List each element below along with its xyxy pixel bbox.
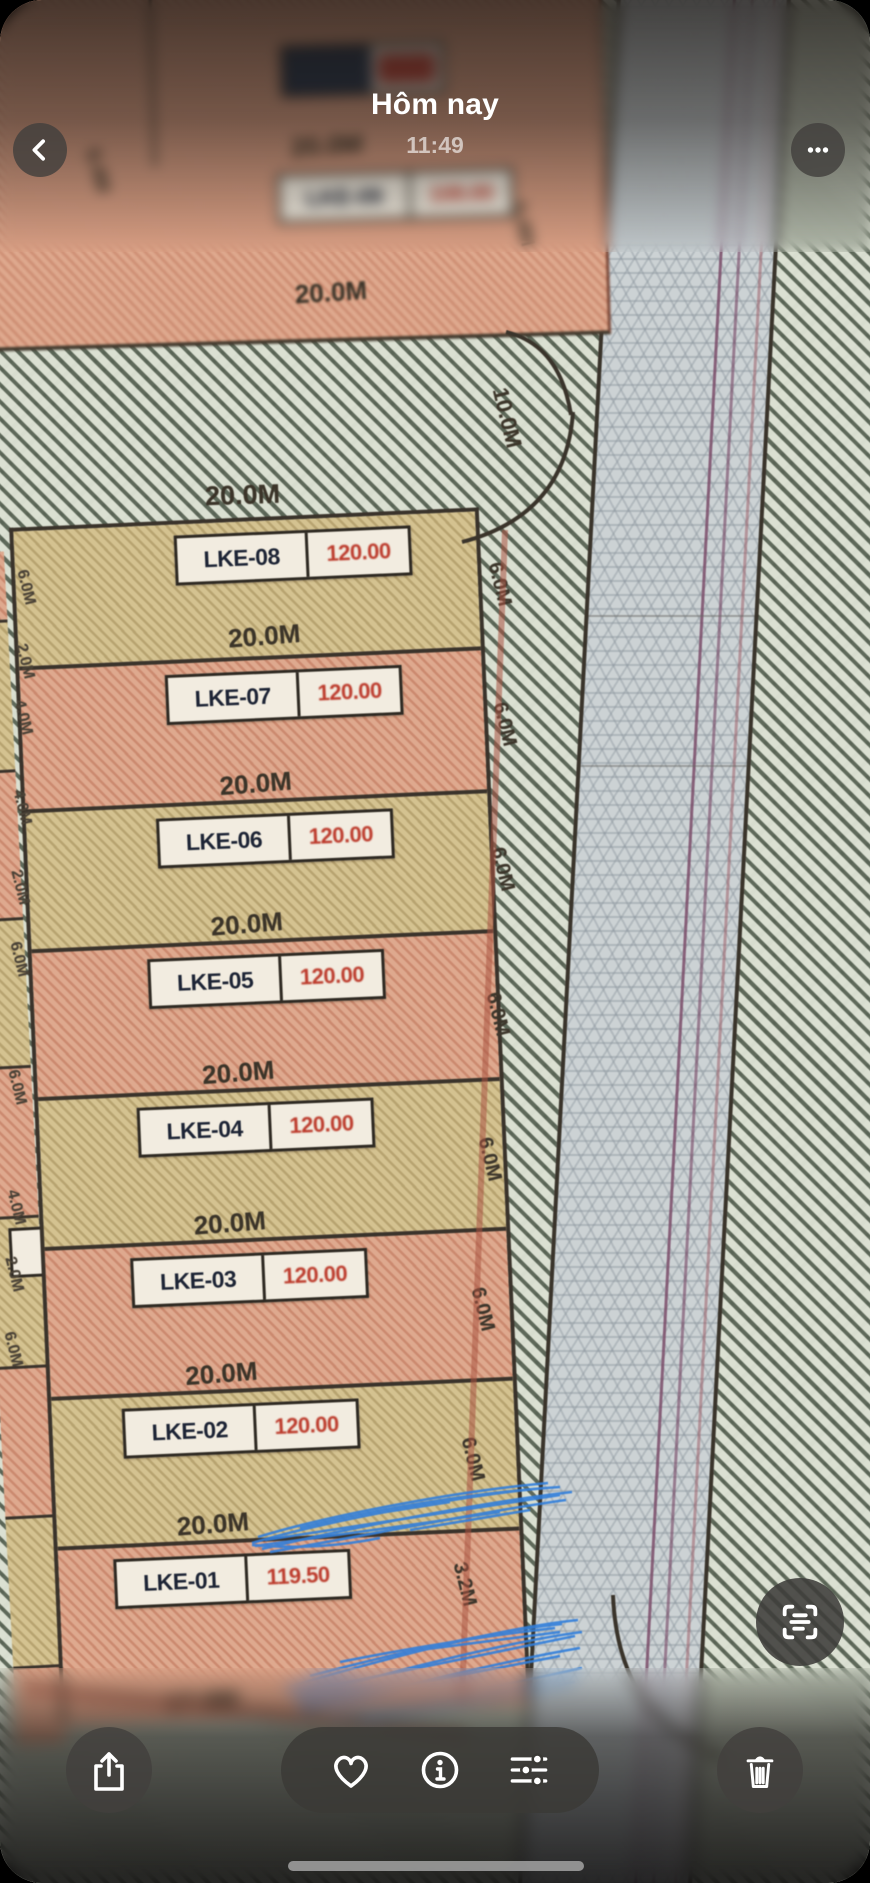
share-button[interactable] <box>66 1727 152 1813</box>
ellipsis-icon <box>800 132 836 168</box>
live-text-button[interactable] <box>756 1578 844 1666</box>
share-icon <box>85 1746 133 1794</box>
detect-text-icon <box>777 1599 823 1645</box>
sliders-icon <box>504 1745 554 1795</box>
timestamp: 11:49 <box>0 132 870 159</box>
info-button[interactable] <box>410 1740 470 1800</box>
delete-button[interactable] <box>717 1727 803 1813</box>
favorite-button[interactable] <box>321 1740 381 1800</box>
photo-actions-toolbar <box>281 1727 599 1813</box>
photos-app-screen: 20.0M LKE-09 108.00 20.0M 6.4M 5.4M 10.0… <box>0 0 870 1883</box>
photo-view[interactable]: 20.0M LKE-09 108.00 20.0M 6.4M 5.4M 10.0… <box>0 0 870 1883</box>
chevron-left-icon <box>25 135 55 165</box>
trash-icon <box>738 1748 782 1792</box>
page-title: Hôm nay <box>0 88 870 122</box>
more-button[interactable] <box>791 123 845 177</box>
heart-icon <box>327 1746 375 1794</box>
back-button[interactable] <box>13 123 67 177</box>
top-gradient-overlay <box>0 0 870 252</box>
adjustments-button[interactable] <box>499 1740 559 1800</box>
info-icon <box>416 1746 464 1794</box>
plan-line-overlay <box>0 0 870 1883</box>
home-indicator[interactable] <box>288 1861 584 1871</box>
cadastral-plan: 20.0M LKE-09 108.00 20.0M 6.4M 5.4M 10.0… <box>0 0 870 1883</box>
